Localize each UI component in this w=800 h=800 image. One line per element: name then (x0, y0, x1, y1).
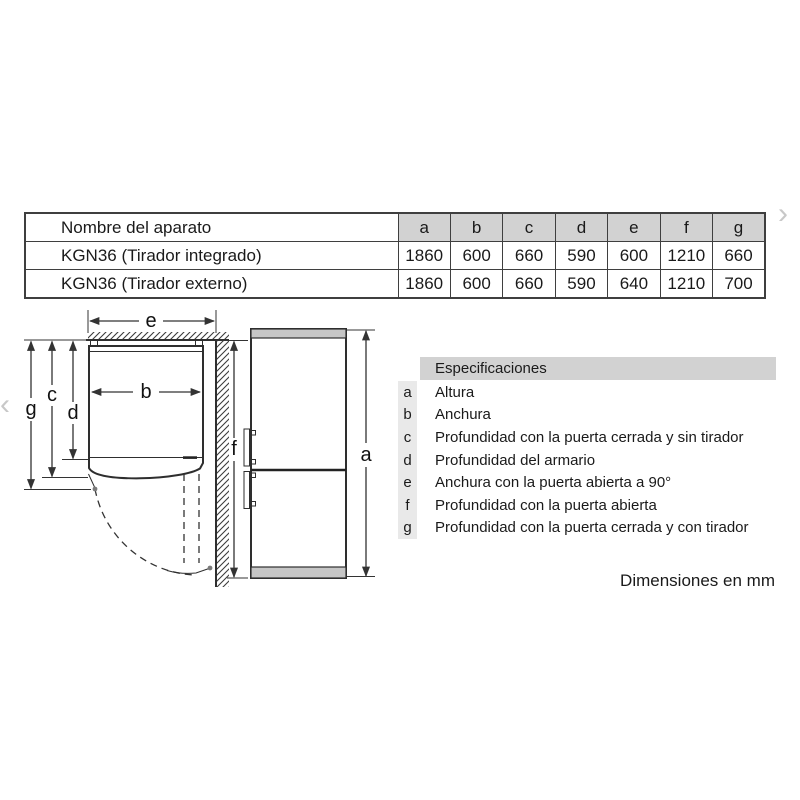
page: { "table": { "name_header": "Nombre del … (0, 0, 800, 800)
spec-label: Profundidad con la puerta abierta (417, 497, 657, 514)
spec-key: f (398, 497, 417, 514)
spec-label: Altura (417, 384, 474, 401)
spec-label: Profundidad del armario (417, 452, 595, 469)
spec-row-d: d Profundidad del armario (398, 449, 776, 472)
top-view: e b g c d f (24, 310, 248, 587)
specifications-list: Especificaciones a Altura b Anchura c Pr… (398, 357, 776, 539)
dim-label-a: a (360, 444, 372, 466)
spec-key: d (398, 452, 417, 469)
spec-key: b (398, 406, 417, 423)
fridge-top-band (251, 329, 346, 338)
dim-label-b: b (140, 381, 151, 403)
dim-label-d: d (67, 402, 78, 424)
spec-row-e: e Anchura con la puerta abierta a 90° (398, 471, 776, 494)
door-open-bottom (167, 569, 209, 574)
dim-label-c: c (47, 384, 57, 406)
specifications-title: Especificaciones (420, 357, 776, 380)
spec-label: Profundidad con la puerta cerrada y con … (417, 519, 749, 536)
dim-label-g: g (25, 398, 36, 420)
spec-label: Profundidad con la puerta cerrada y sin … (417, 429, 744, 446)
spec-row-f: f Profundidad con la puerta abierta (398, 494, 776, 517)
wall-side-hatch (216, 340, 229, 587)
specifications-body: a Altura b Anchura c Profundidad con la … (398, 381, 776, 539)
fridge-handle-lower (244, 472, 250, 509)
specifications-header: Especificaciones (398, 357, 776, 380)
front-view: a (244, 329, 375, 578)
spec-row-a: a Altura (398, 381, 776, 404)
fridge-handle-upper (244, 429, 250, 466)
spec-header-spacer (398, 357, 420, 380)
spec-row-g: g Profundidad con la puerta cerrada y co… (398, 517, 776, 540)
spec-key: e (398, 474, 417, 491)
fridge-body (251, 329, 346, 578)
spec-label: Anchura con la puerta abierta a 90° (417, 474, 671, 491)
spec-key: g (398, 519, 417, 536)
open-handle-dot (208, 566, 213, 571)
door-closed (89, 458, 203, 478)
fridge-bottom-band (251, 567, 346, 578)
units-note: Dimensiones en mm (620, 571, 775, 591)
handle-tip-dot (93, 487, 98, 492)
spec-row-c: c Profundidad con la puerta cerrada y si… (398, 426, 776, 449)
spec-label: Anchura (417, 406, 491, 423)
dim-label-e: e (145, 310, 156, 332)
spec-key: a (398, 384, 417, 401)
door-swing-arc (95, 489, 195, 575)
wall-top-hatch (88, 332, 229, 340)
dim-label-f: f (231, 438, 237, 460)
spec-key: c (398, 429, 417, 446)
spec-row-b: b Anchura (398, 404, 776, 427)
handle-tip-line (89, 474, 95, 487)
